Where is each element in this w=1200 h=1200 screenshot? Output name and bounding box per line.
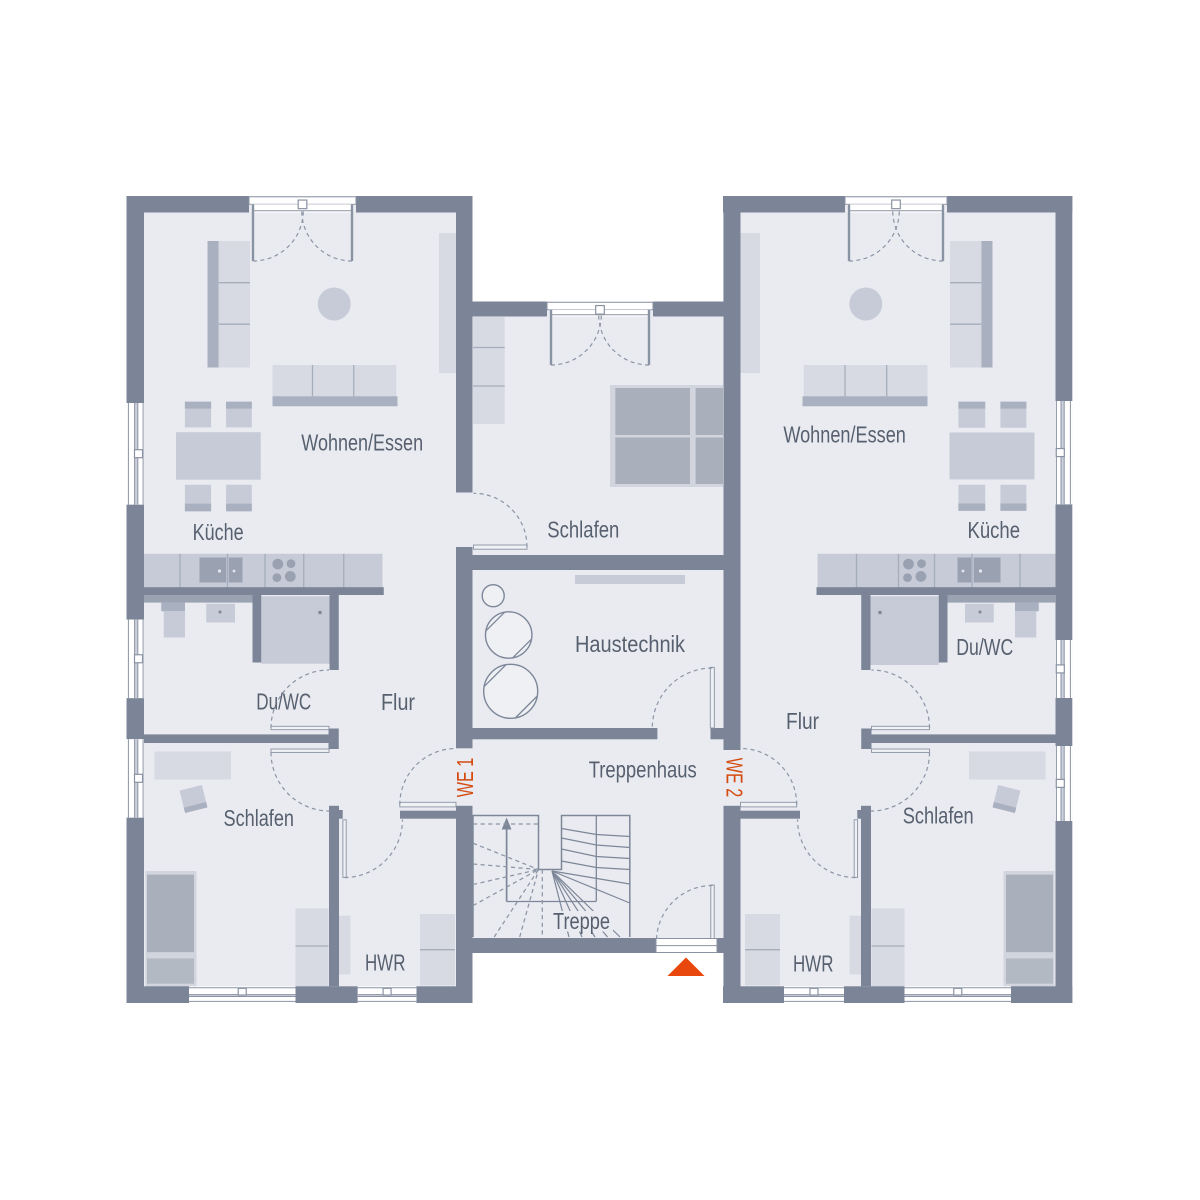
- svg-text:HWR: HWR: [365, 950, 406, 976]
- svg-text:Küche: Küche: [968, 517, 1021, 543]
- svg-text:Treppe: Treppe: [553, 908, 610, 934]
- svg-text:Schlafen: Schlafen: [224, 805, 295, 831]
- svg-text:Küche: Küche: [193, 519, 244, 545]
- svg-text:HWR: HWR: [793, 951, 834, 977]
- svg-text:Wohnen/Essen: Wohnen/Essen: [301, 430, 423, 456]
- svg-text:Wohnen/Essen: Wohnen/Essen: [783, 422, 906, 448]
- svg-text:Du/WC: Du/WC: [256, 689, 311, 715]
- svg-text:Schlafen: Schlafen: [903, 803, 974, 829]
- svg-text:Treppenhaus: Treppenhaus: [589, 757, 697, 783]
- svg-text:Haustechnik: Haustechnik: [575, 631, 685, 657]
- svg-text:Flur: Flur: [381, 689, 415, 715]
- svg-text:Schlafen: Schlafen: [547, 517, 619, 543]
- svg-text:Du/WC: Du/WC: [956, 634, 1013, 660]
- svg-text:WE 2: WE 2: [722, 758, 748, 798]
- svg-text:Flur: Flur: [786, 708, 819, 734]
- svg-text:WE 1: WE 1: [452, 758, 478, 798]
